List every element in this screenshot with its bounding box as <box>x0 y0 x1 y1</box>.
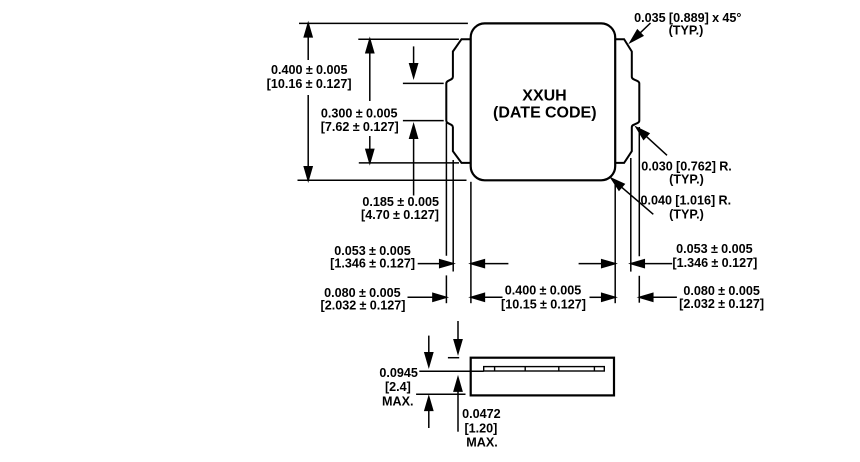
svg-text:[10.15 ± 0.127]: [10.15 ± 0.127] <box>501 298 586 312</box>
svg-text:[1.346 ± 0.127]: [1.346 ± 0.127] <box>672 256 757 270</box>
svg-text:[4.70 ± 0.127]: [4.70 ± 0.127] <box>361 208 439 222</box>
svg-text:[10.16 ± 0.127]: [10.16 ± 0.127] <box>267 77 352 91</box>
svg-text:(TYP.): (TYP.) <box>669 173 704 187</box>
svg-text:[2.032 ± 0.127]: [2.032 ± 0.127] <box>321 299 406 313</box>
svg-text:0.300 ± 0.005: 0.300 ± 0.005 <box>321 107 398 121</box>
svg-text:[1.346 ± 0.127]: [1.346 ± 0.127] <box>330 257 415 271</box>
svg-text:[2.4]: [2.4] <box>385 380 411 394</box>
svg-text:0.400 ± 0.005: 0.400 ± 0.005 <box>271 63 348 77</box>
svg-text:0.400 ± 0.005: 0.400 ± 0.005 <box>505 284 582 298</box>
svg-text:MAX.: MAX. <box>466 436 497 450</box>
svg-text:(DATE CODE): (DATE CODE) <box>493 104 597 121</box>
svg-text:0.040 [1.016] R.: 0.040 [1.016] R. <box>640 193 731 207</box>
svg-text:[1.20]: [1.20] <box>464 421 497 435</box>
svg-text:[7.62 ± 0.127]: [7.62 ± 0.127] <box>321 120 399 134</box>
svg-text:0.053 ± 0.005: 0.053 ± 0.005 <box>676 242 753 256</box>
svg-text:MAX.: MAX. <box>382 395 413 409</box>
svg-text:(TYP.): (TYP.) <box>669 23 704 37</box>
svg-text:XXUH: XXUH <box>522 87 566 104</box>
svg-text:0.030 [0.762] R.: 0.030 [0.762] R. <box>641 160 732 174</box>
svg-text:[2.032 ± 0.127]: [2.032 ± 0.127] <box>679 297 764 311</box>
svg-text:0.0472: 0.0472 <box>462 407 501 421</box>
svg-text:(TYP.): (TYP.) <box>669 207 704 221</box>
svg-text:0.185 ± 0.005: 0.185 ± 0.005 <box>362 195 439 209</box>
svg-text:0.0945: 0.0945 <box>379 366 418 380</box>
svg-text:0.080 ± 0.005: 0.080 ± 0.005 <box>683 284 760 298</box>
